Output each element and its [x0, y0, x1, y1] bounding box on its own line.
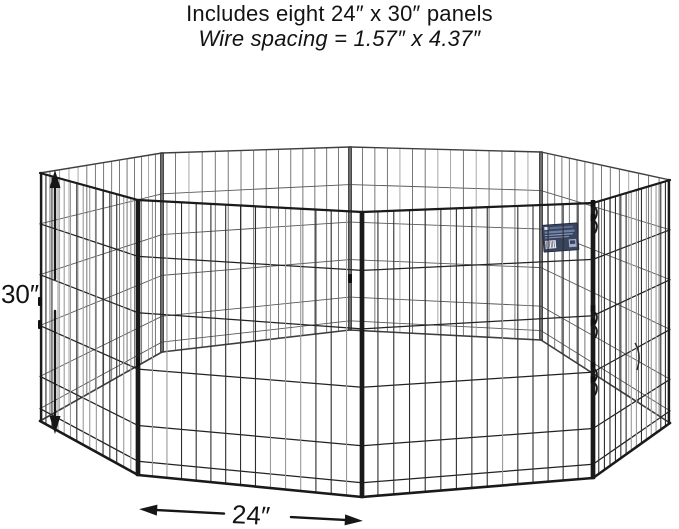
panel-connector-tab [38, 320, 42, 329]
panel-connector-tab [348, 274, 352, 283]
height-dimension-arrow [50, 170, 61, 434]
product-dimension-diagram: Includes eight 24″ x 30″ panels Wire spa… [0, 0, 679, 529]
width-dimension-label: 24″ [216, 498, 286, 529]
pen-panel [541, 152, 670, 423]
pen-panel [138, 200, 362, 497]
pen-panel [593, 180, 670, 478]
pen-panel [350, 147, 541, 340]
height-dimension-label: 30″ [0, 279, 43, 310]
panel-connector-tab [136, 358, 140, 367]
wire-pen-illustration [0, 0, 679, 529]
